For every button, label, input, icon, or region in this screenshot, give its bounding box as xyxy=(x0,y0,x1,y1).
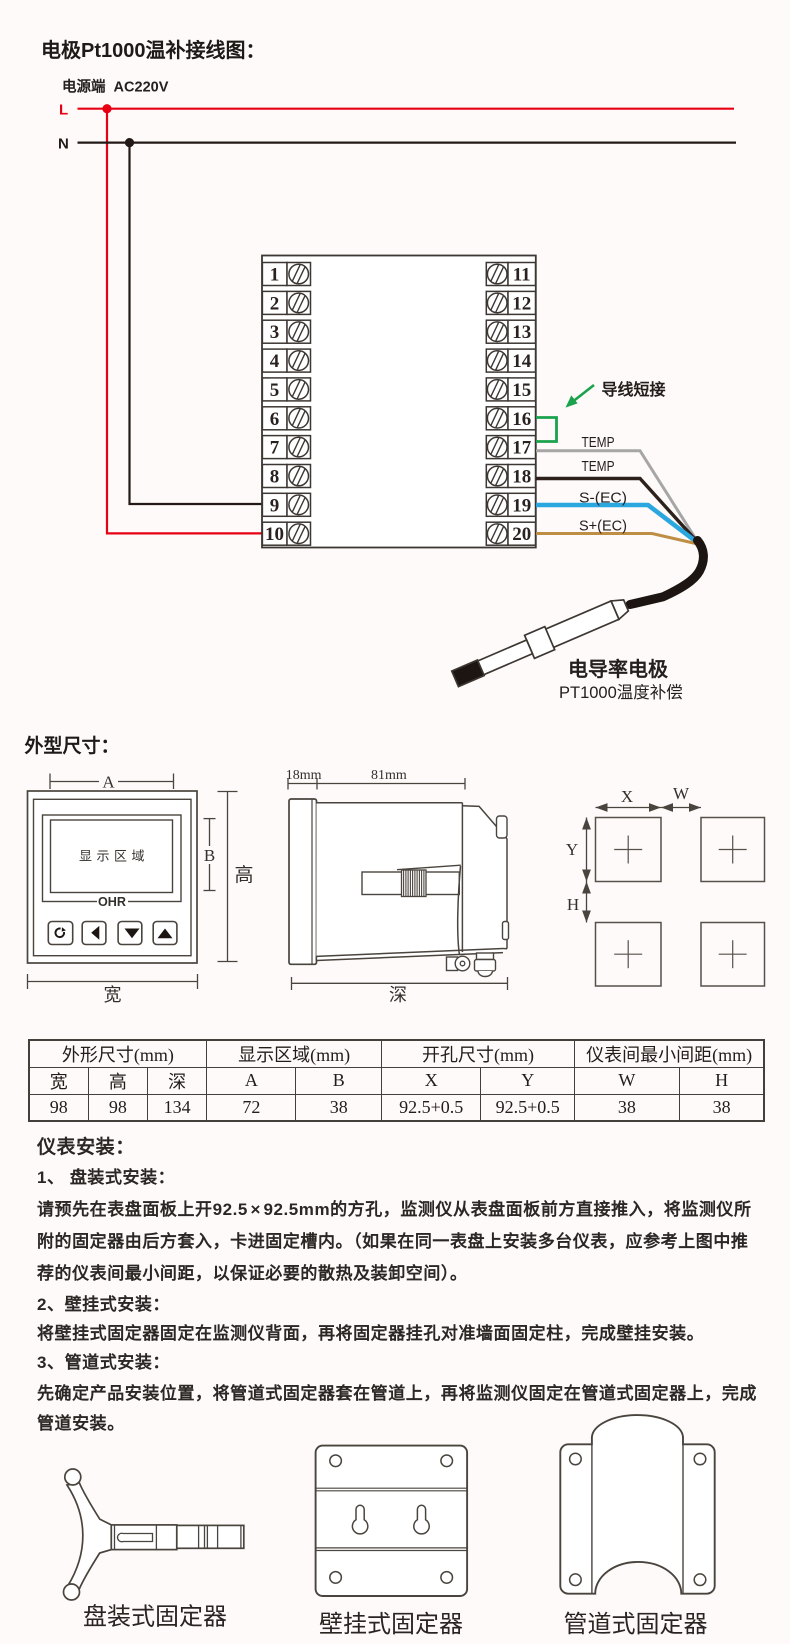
svg-text:7: 7 xyxy=(270,438,280,459)
svg-text:OHR: OHR xyxy=(98,894,127,909)
svg-text:W: W xyxy=(673,784,690,803)
svg-text:B: B xyxy=(204,846,215,865)
svg-text:18mm: 18mm xyxy=(286,768,322,783)
svg-text:TEMP: TEMP xyxy=(582,458,615,475)
svg-text:9: 9 xyxy=(270,495,280,516)
svg-text:X: X xyxy=(621,787,633,806)
svg-text:5: 5 xyxy=(270,380,280,401)
svg-text:高: 高 xyxy=(235,864,254,886)
svg-text:81mm: 81mm xyxy=(371,768,407,783)
svg-text:12: 12 xyxy=(512,293,531,314)
svg-text:2: 2 xyxy=(270,293,280,314)
svg-text:3: 3 xyxy=(270,322,280,343)
svg-text:L: L xyxy=(59,102,68,119)
svg-text:16: 16 xyxy=(512,409,531,430)
svg-text:20: 20 xyxy=(512,524,531,545)
svg-text:13: 13 xyxy=(512,322,531,343)
svg-text:TEMP: TEMP xyxy=(582,434,615,451)
svg-text:深: 深 xyxy=(389,985,407,1005)
svg-text:壁挂式固定器: 壁挂式固定器 xyxy=(319,1611,463,1638)
svg-text:4: 4 xyxy=(270,351,280,372)
svg-text:S+(EC): S+(EC) xyxy=(579,518,627,535)
svg-text:电导率电极: 电导率电极 xyxy=(568,657,669,681)
svg-text:10: 10 xyxy=(265,524,284,545)
svg-text:宽: 宽 xyxy=(104,985,122,1005)
svg-text:1: 1 xyxy=(270,265,280,286)
svg-text:电源端 AC220V: 电源端 AC220V xyxy=(62,78,169,96)
svg-text:导线短接: 导线短接 xyxy=(602,380,666,399)
svg-text:S-(EC): S-(EC) xyxy=(579,490,627,507)
svg-text:N: N xyxy=(58,136,69,153)
svg-text:A: A xyxy=(102,773,115,792)
svg-text:显示区域: 显示区域 xyxy=(79,849,149,864)
svg-text:8: 8 xyxy=(270,467,280,488)
svg-text:H: H xyxy=(567,895,579,914)
svg-text:PT1000温度补偿: PT1000温度补偿 xyxy=(559,683,683,702)
svg-text:14: 14 xyxy=(512,351,532,372)
svg-text:19: 19 xyxy=(512,495,531,516)
svg-text:盘装式固定器: 盘装式固定器 xyxy=(83,1604,227,1631)
svg-text:Y: Y xyxy=(566,840,578,859)
svg-text:管道式固定器: 管道式固定器 xyxy=(564,1611,708,1638)
svg-text:11: 11 xyxy=(513,265,531,286)
svg-text:18: 18 xyxy=(512,467,531,488)
svg-text:6: 6 xyxy=(270,409,280,430)
svg-text:17: 17 xyxy=(512,438,532,459)
svg-text:15: 15 xyxy=(512,380,531,401)
